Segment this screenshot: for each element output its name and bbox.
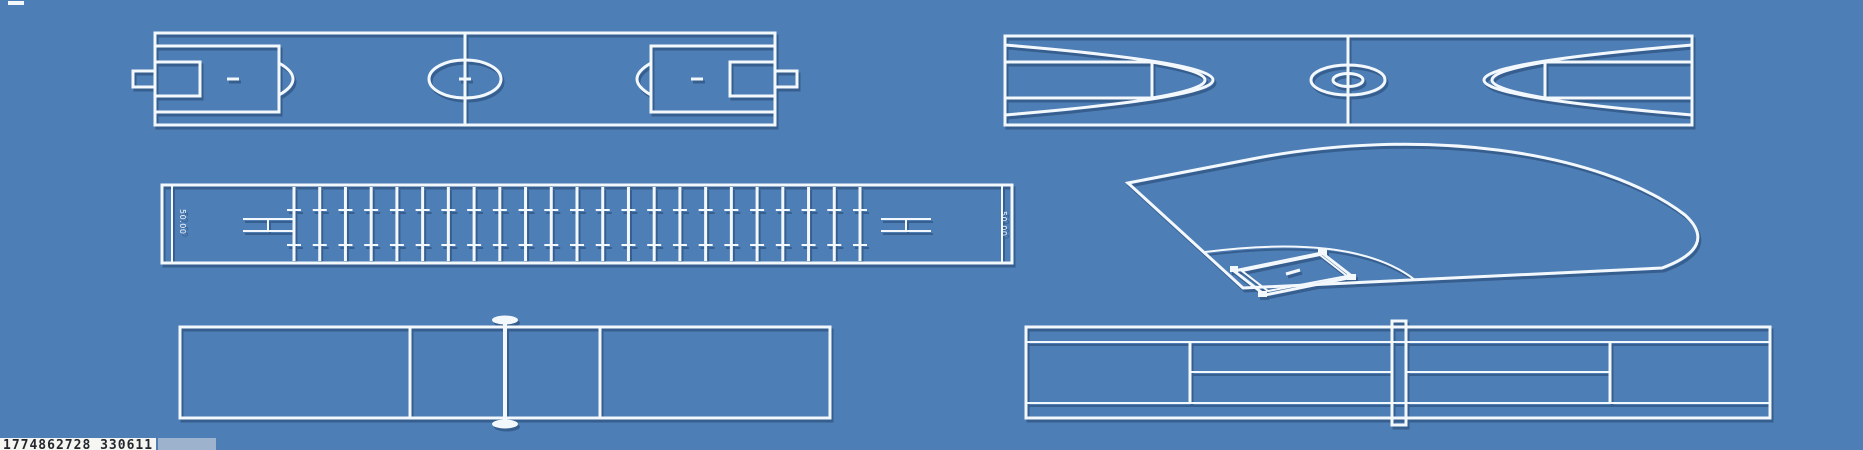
watermark-strip: 1774862728 330611: [0, 438, 216, 450]
soccer-penalty-arc-right: [637, 63, 651, 95]
watermark-id-text: 1774862728 330611: [0, 438, 156, 450]
pool-end-label-right: 50.00: [999, 211, 1008, 236]
soccer-goal-right: [775, 71, 797, 87]
volleyball-court-icon: [180, 316, 830, 429]
baseball-second-base: [1318, 249, 1327, 255]
pool-end-label-left: 50.00: [178, 209, 187, 234]
sports-courts-drawing: 50.00 50.00: [0, 0, 1863, 450]
baseball-third-base: [1258, 291, 1267, 297]
basketball-free-throw-arc-right: [1492, 62, 1545, 98]
tennis-net: [1392, 321, 1406, 425]
cad-blueprint-canvas: 50.00 50.00: [0, 0, 1863, 450]
soccer-penalty-arc-left: [279, 63, 293, 95]
pool-lane-lines: [287, 187, 867, 261]
baseball-field-icon: [1128, 144, 1698, 297]
baseball-first-base: [1347, 274, 1356, 280]
corner-artifact: [8, 1, 24, 5]
soccer-goal-area-right: [730, 62, 775, 96]
tennis-outer-boundary: [1026, 327, 1770, 418]
basketball-three-point-arc-left: [1005, 45, 1213, 115]
watermark-color-box: [158, 438, 216, 450]
pool-outer-boundary: [162, 185, 1012, 263]
basketball-court-icon: [1005, 36, 1692, 125]
volleyball-net-post-bottom: [492, 420, 518, 429]
basketball-three-point-arc-right: [1484, 45, 1692, 115]
soccer-penalty-area-right: [651, 46, 775, 112]
pool-t-mark-left: [243, 219, 293, 231]
pool-t-mark-right: [881, 219, 931, 231]
soccer-goal-area-left: [155, 62, 200, 96]
volleyball-net-post-top: [492, 316, 518, 325]
baseball-pitcher-mound: [1286, 270, 1300, 274]
soccer-penalty-area-left: [155, 46, 279, 112]
swimming-pool-icon: 50.00 50.00: [162, 185, 1012, 263]
baseball-home-plate: [1230, 266, 1238, 272]
baseball-outfield-boundary: [1128, 144, 1698, 288]
baseball-infield-arc: [1205, 247, 1415, 280]
soccer-goal-left: [133, 71, 155, 87]
basketball-free-throw-arc-left: [1152, 62, 1205, 98]
tennis-court-icon: [1026, 321, 1770, 425]
soccer-field-icon: [133, 33, 797, 125]
